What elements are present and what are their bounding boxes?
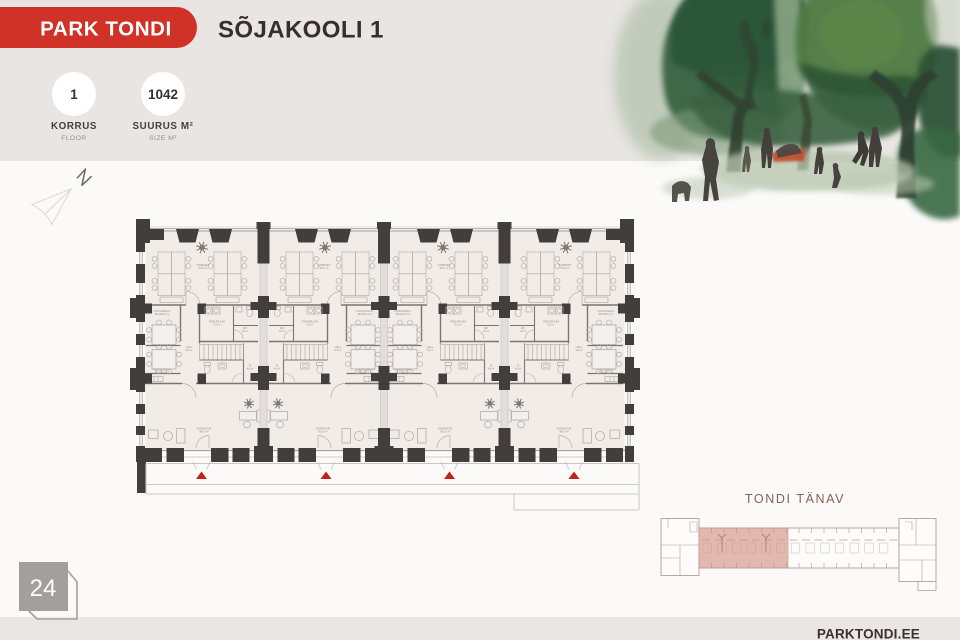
- svg-text:SUURUS M²: SUURUS M²: [133, 121, 194, 132]
- svg-text:SÕJAKOOLI 1: SÕJAKOOLI 1: [218, 16, 384, 44]
- svg-text:KOOSOLEKU-RUUM 9,0 m²: KOOSOLEKU-RUUM 9,0 m²: [153, 368, 170, 375]
- svg-text:KOOSOLEKU-RUUM 8,3 m²: KOOSOLEKU-RUUM 8,3 m²: [356, 309, 373, 316]
- svg-text:SIZE M²: SIZE M²: [149, 135, 177, 142]
- svg-text:KOOSOLEKU-RUUM 9,0 m²: KOOSOLEKU-RUUM 9,0 m²: [394, 368, 411, 375]
- svg-text:1: 1: [70, 87, 78, 102]
- svg-text:HALL9,6 m²: HALL9,6 m²: [335, 345, 342, 352]
- svg-text:KOOSOLEKU-RUUM 8,3 m²: KOOSOLEKU-RUUM 8,3 m²: [153, 309, 170, 316]
- svg-text:TONDI TÄNAV: TONDI TÄNAV: [745, 492, 845, 506]
- svg-text:PARKTONDI.EE: PARKTONDI.EE: [817, 627, 920, 640]
- svg-text:KORRUS: KORRUS: [51, 121, 97, 132]
- svg-text:KOOSOLEKU-RUUM 8,3 m²: KOOSOLEKU-RUUM 8,3 m²: [597, 309, 614, 316]
- svg-text:KOOSOLEKU-RUUM 9,0 m²: KOOSOLEKU-RUUM 9,0 m²: [356, 368, 373, 375]
- svg-text:24: 24: [30, 575, 57, 602]
- svg-text:HALL9,6 m²: HALL9,6 m²: [576, 345, 583, 352]
- svg-text:HALL9,6 m²: HALL9,6 m²: [427, 345, 434, 352]
- svg-text:PARK TONDI: PARK TONDI: [40, 18, 172, 41]
- svg-text:FLOOR: FLOOR: [61, 135, 86, 142]
- svg-text:1042: 1042: [148, 87, 178, 102]
- svg-text:HALL9,6 m²: HALL9,6 m²: [186, 345, 193, 352]
- svg-text:KOOSOLEKU-RUUM 8,3 m²: KOOSOLEKU-RUUM 8,3 m²: [394, 309, 411, 316]
- svg-text:KOOSOLEKU-RUUM 9,0 m²: KOOSOLEKU-RUUM 9,0 m²: [597, 368, 614, 375]
